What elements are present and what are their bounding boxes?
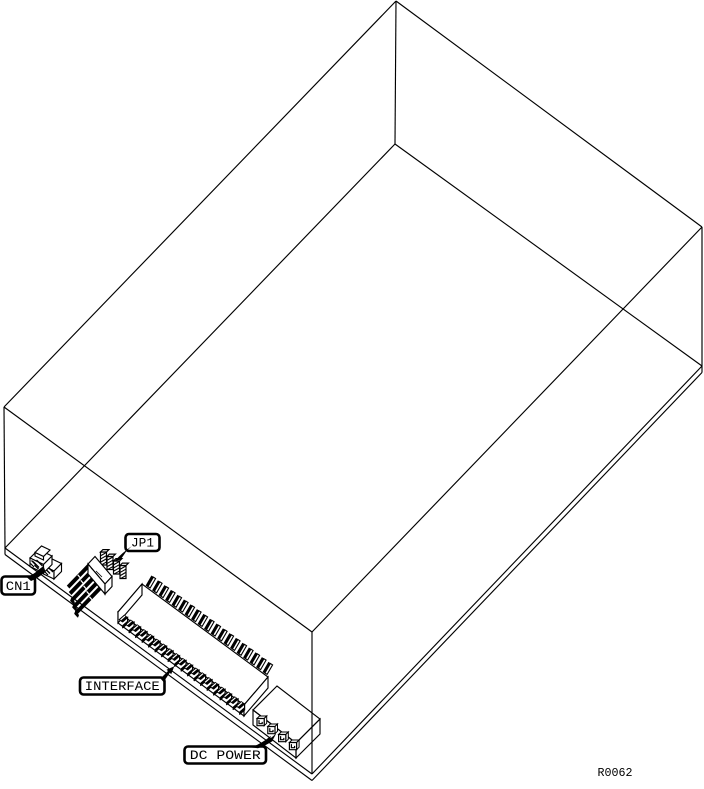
svg-text:CN1: CN1	[6, 580, 31, 594]
svg-text:DC POWER: DC POWER	[190, 749, 262, 763]
svg-text:INTERFACE: INTERFACE	[85, 680, 160, 694]
svg-text:JP1: JP1	[131, 537, 154, 551]
svg-text:R0062: R0062	[598, 766, 633, 780]
